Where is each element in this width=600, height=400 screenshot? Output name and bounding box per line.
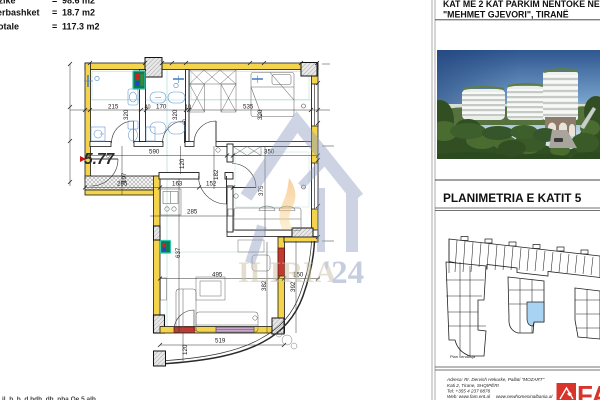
svg-text:285: 285 — [187, 209, 198, 216]
svg-text:120: 120 — [179, 158, 186, 169]
svg-text:40: 40 — [145, 105, 151, 111]
svg-text:FA: FA — [577, 380, 600, 400]
svg-text:=: = — [52, 8, 57, 18]
svg-text:120: 120 — [182, 344, 189, 355]
svg-text:495: 495 — [212, 272, 223, 279]
svg-text:182: 182 — [213, 169, 220, 180]
svg-text:320: 320 — [257, 109, 264, 120]
svg-text:KAT ME 2 KAT PARKIM NENTOKE NE: KAT ME 2 KAT PARKIM NENTOKE NE RRUGEN — [443, 0, 600, 9]
svg-text:152: 152 — [206, 181, 217, 188]
svg-text:637: 637 — [175, 247, 182, 258]
svg-text:535: 535 — [243, 104, 254, 111]
svg-text:PLANIMETRIA E KATIT 5: PLANIMETRIA E KATIT 5 — [443, 191, 582, 205]
svg-text:www.newhomesinalbania.al: www.newhomesinalbania.al — [496, 394, 553, 399]
svg-text:163: 163 — [172, 181, 183, 188]
svg-text:170: 170 — [156, 104, 167, 111]
svg-text:=: = — [52, 22, 57, 32]
svg-text:10: 10 — [185, 105, 191, 111]
svg-text:Tel: +355 4 237 8878: Tel: +355 4 237 8878 — [447, 389, 491, 394]
svg-text:Plan vendosja: Plan vendosja — [450, 354, 476, 359]
svg-text:590: 590 — [149, 149, 160, 156]
svg-text:"MEHMET GJEVORI", TIRANË: "MEHMET GJEVORI", TIRANË — [443, 10, 569, 20]
svg-text:otale: otale — [0, 22, 19, 32]
svg-text:18.7 m2: 18.7 m2 — [62, 8, 95, 18]
svg-text:519: 519 — [215, 338, 226, 345]
svg-text:=: = — [52, 0, 57, 6]
svg-text:erbashket: erbashket — [0, 8, 40, 18]
svg-text:98.6 m2: 98.6 m2 — [62, 0, 95, 6]
svg-text:197: 197 — [121, 172, 128, 183]
svg-text:117.3 m2: 117.3 m2 — [62, 22, 100, 32]
svg-text:320: 320 — [123, 109, 130, 120]
svg-text:Web: www.fam.ent.al: Web: www.fam.ent.al — [447, 394, 491, 399]
svg-text:il. b. b. d bdh. dh. nba Q: il. b. b. d bdh. dh. nba Qe 5 alb. — [2, 396, 98, 400]
svg-text:Adresa: Rr. Dervish Hekurke, P: Adresa: Rr. Dervish Hekurke, Pallati "MO… — [446, 377, 545, 382]
svg-text:215: 215 — [108, 104, 119, 111]
svg-text:Kati 2, Tirane, SHQIPËRI: Kati 2, Tirane, SHQIPËRI — [447, 382, 500, 388]
svg-text:'24: '24 — [322, 255, 364, 291]
svg-text:fizike: fizike — [0, 0, 16, 6]
svg-text:320: 320 — [172, 109, 179, 120]
svg-text:5.77: 5.77 — [84, 151, 116, 168]
